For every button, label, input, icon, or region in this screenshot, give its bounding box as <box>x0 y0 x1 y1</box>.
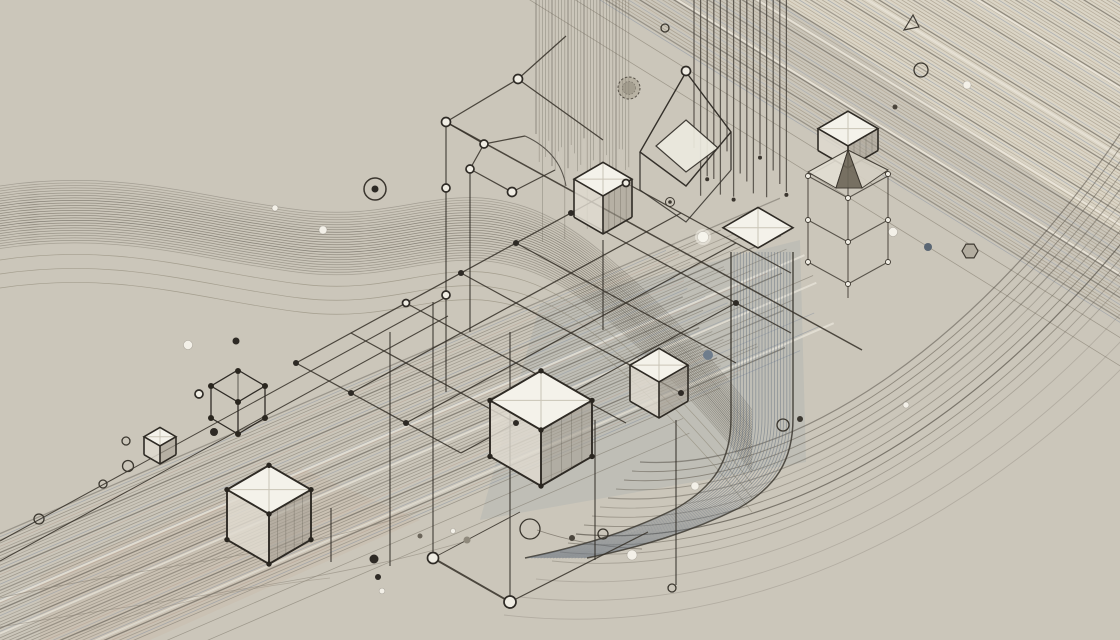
node-filled <box>568 210 574 216</box>
node-filled <box>513 420 519 426</box>
dark-dot <box>893 105 898 110</box>
node-open <box>682 67 691 76</box>
abstract-geometric-composition <box>0 0 1120 640</box>
node-filled <box>375 574 381 580</box>
node-filled <box>293 360 299 366</box>
node-open <box>403 300 410 307</box>
node-filled <box>458 270 464 276</box>
node-filled <box>348 390 354 396</box>
node-open <box>504 596 516 608</box>
white-dot <box>889 228 898 237</box>
node-open <box>514 75 523 84</box>
abstract-artwork <box>0 0 1120 640</box>
white-dot <box>319 226 327 234</box>
white-dot <box>272 205 278 211</box>
dark-dot <box>418 534 423 539</box>
node-filled <box>233 338 240 345</box>
node-open <box>623 180 630 187</box>
dark-dot <box>703 350 713 360</box>
white-dot <box>379 588 385 594</box>
node-open <box>442 118 451 127</box>
dark-dot <box>569 535 575 541</box>
node-filled <box>513 240 519 246</box>
white-dot <box>691 482 699 490</box>
node-open <box>428 553 439 564</box>
white-dot <box>963 81 971 89</box>
node-open <box>480 140 488 148</box>
node-open <box>442 291 450 299</box>
white-dot <box>903 402 909 408</box>
dark-dot <box>797 416 803 422</box>
node-filled <box>210 428 218 436</box>
node-filled <box>678 390 684 396</box>
white-dot <box>451 529 456 534</box>
node-filled <box>403 420 409 426</box>
hexagon-glyph <box>962 244 978 258</box>
node-filled <box>370 555 379 564</box>
white-dot <box>627 550 637 560</box>
node-open <box>508 188 517 197</box>
node-filled <box>733 300 739 306</box>
node-open <box>195 390 203 398</box>
dark-dot <box>924 243 932 251</box>
node-open <box>466 165 474 173</box>
node-open <box>442 184 450 192</box>
dark-dot <box>464 537 471 544</box>
white-dot <box>184 341 193 350</box>
